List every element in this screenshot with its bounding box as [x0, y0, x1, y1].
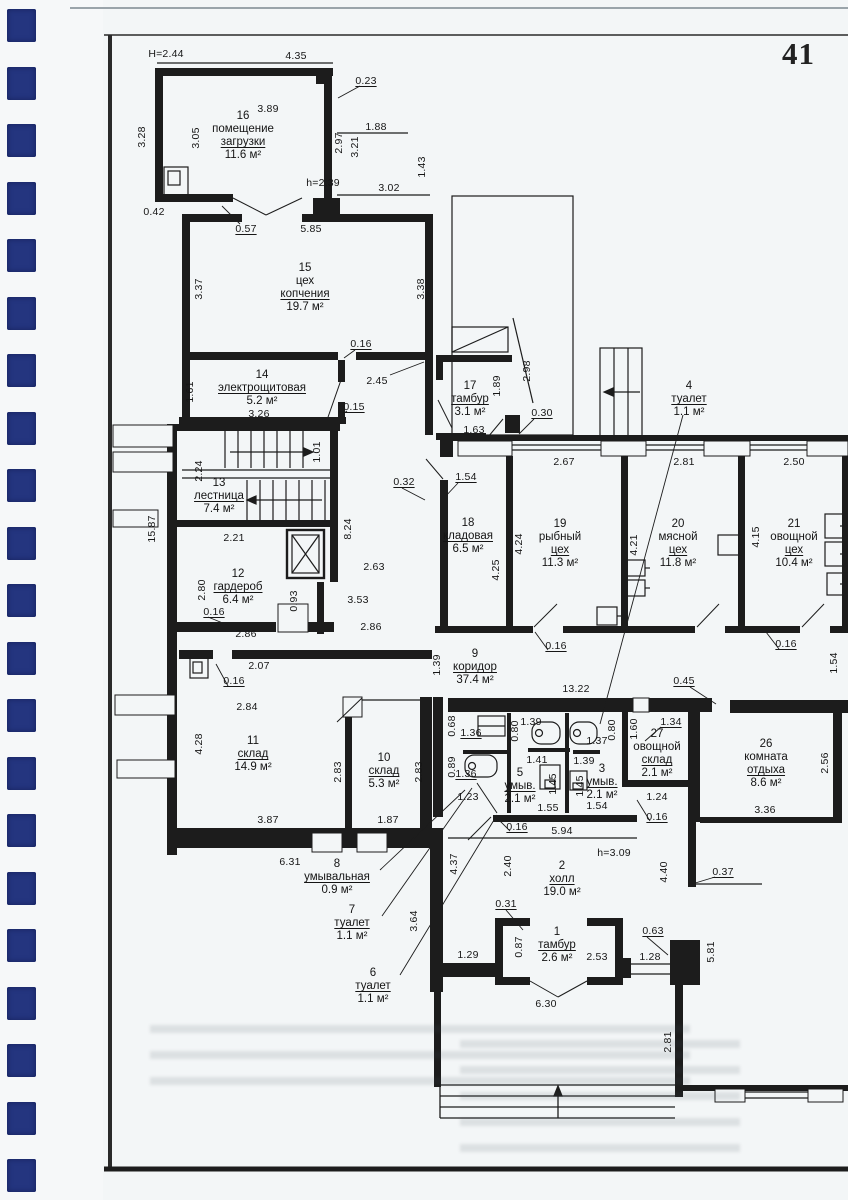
binding-hole — [7, 239, 36, 272]
dimension-label: 3.26 — [248, 408, 269, 420]
dimension-label: 1.54 — [455, 471, 476, 483]
room-label-27: 27овощнойсклад2.1 м² — [633, 728, 680, 780]
room-area: 6.5 м² — [443, 543, 493, 556]
dimension-label: 1.61 — [184, 381, 196, 402]
binding-hole — [7, 814, 36, 847]
dimension-label: 4.37 — [448, 853, 460, 874]
dimension-label: 3.53 — [347, 594, 368, 606]
room-number: 21 — [770, 518, 817, 531]
dimension-label: 0.23 — [355, 75, 376, 87]
dimension-label: 0.16 — [223, 675, 244, 687]
room-name: отдыха — [744, 764, 788, 777]
room-name: склад — [633, 754, 680, 767]
room-area: 3.1 м² — [451, 406, 489, 419]
dimension-label: 0.57 — [235, 223, 256, 235]
room-label-4: 4туалет1.1 м² — [671, 380, 706, 419]
room-name: гардероб — [214, 581, 263, 594]
dimension-label: 0.16 — [646, 811, 667, 823]
dimension-label: h=3.09 — [597, 847, 631, 859]
room-name: лестница — [194, 490, 244, 503]
dimension-label: 2.81 — [662, 1031, 674, 1052]
dimension-label: 2.07 — [248, 660, 269, 672]
binding-hole — [7, 124, 36, 157]
dimension-label: 0.31 — [495, 898, 516, 910]
room-area: 14.9 м² — [234, 761, 271, 774]
binding-hole — [7, 182, 36, 215]
dimension-label: 1.36 — [455, 768, 476, 780]
binding-hole — [7, 354, 36, 387]
dimension-label: 0.93 — [288, 590, 300, 611]
room-number: 4 — [671, 380, 706, 393]
binding-strip — [0, 0, 48, 1200]
dimension-label: 0.16 — [545, 640, 566, 652]
binding-hole — [7, 469, 36, 502]
dimension-label: 1.88 — [365, 121, 386, 133]
room-label-12: 12гардероб6.4 м² — [214, 568, 263, 607]
room-label-15: 15цехкопчения19.7 м² — [280, 262, 329, 314]
dimension-label: 1.23 — [457, 791, 478, 803]
room-label-26: 26комнатаотдыха8.6 м² — [744, 738, 788, 790]
dimension-label: 2.50 — [783, 456, 804, 468]
room-number: 7 — [334, 904, 369, 917]
room-name: туалет — [355, 980, 390, 993]
room-label-3: 3умыв.2.1 м² — [586, 763, 617, 802]
room-name: электрощитовая — [218, 382, 306, 395]
dimension-label: 0.45 — [673, 675, 694, 687]
room-area: 1.1 м² — [355, 993, 390, 1006]
dimension-label: 1.54 — [586, 800, 607, 812]
dimension-label: 1.39 — [520, 716, 541, 728]
dimension-label: 0.87 — [513, 936, 525, 957]
dimension-label: 0.16 — [203, 606, 224, 618]
binding-hole — [7, 9, 36, 42]
dimension-label: 1.39 — [573, 755, 594, 767]
room-name: тамбур — [451, 393, 489, 406]
dimension-label: 0.68 — [446, 715, 458, 736]
dimension-label: 0.80 — [509, 720, 521, 741]
room-area: 19.7 м² — [280, 301, 329, 314]
room-area: 5.2 м² — [218, 395, 306, 408]
room-area: 1.1 м² — [334, 930, 369, 943]
room-number: 15 — [280, 262, 329, 275]
room-number: 20 — [658, 518, 697, 531]
room-area: 2.1 м² — [504, 793, 535, 806]
room-name: цех — [770, 544, 817, 557]
room-number: 1 — [538, 926, 576, 939]
room-area: 2.6 м² — [538, 952, 576, 965]
dimension-label: 0.32 — [393, 476, 414, 488]
room-name: туалет — [671, 393, 706, 406]
room-name: копчения — [280, 288, 329, 301]
room-label-17: 17тамбур3.1 м² — [451, 380, 489, 419]
dimension-label: 1.41 — [526, 754, 547, 766]
binding-hole — [7, 1159, 36, 1192]
room-area: 2.1 м² — [633, 767, 680, 780]
dimension-label: 2.21 — [223, 532, 244, 544]
binding-hole — [7, 642, 36, 675]
room-label-2: 2холл19.0 м² — [543, 860, 580, 899]
dimension-label: 1.01 — [311, 441, 323, 462]
room-number: 11 — [234, 735, 271, 748]
room-name: кладовая — [443, 530, 493, 543]
room-label-10: 10склад5.3 м² — [369, 752, 400, 791]
room-label-18: 18кладовая6.5 м² — [443, 517, 493, 556]
binding-hole — [7, 67, 36, 100]
room-name: овощной — [770, 531, 817, 544]
room-label-7: 7туалет1.1 м² — [334, 904, 369, 943]
dimension-label: 3.02 — [378, 182, 399, 194]
dimension-label: 2.98 — [521, 360, 533, 381]
room-number: 27 — [633, 728, 680, 741]
dimension-label: 1.29 — [457, 949, 478, 961]
dimension-label: 1.63 — [463, 424, 484, 436]
dimension-label: 0.16 — [775, 638, 796, 650]
room-name: умыв. — [586, 776, 617, 789]
room-label-1: 1тамбур2.6 м² — [538, 926, 576, 965]
room-area: 11.6 м² — [212, 149, 274, 162]
binding-hole — [7, 1102, 36, 1135]
room-name: склад — [234, 748, 271, 761]
dimension-label: 2.81 — [673, 456, 694, 468]
room-area: 8.6 м² — [744, 777, 788, 790]
binding-hole — [7, 987, 36, 1020]
room-name: мясной — [658, 531, 697, 544]
dimension-label: 2.97 — [333, 132, 345, 153]
room-number: 10 — [369, 752, 400, 765]
dimension-label: 4.28 — [193, 733, 205, 754]
binding-hole — [7, 872, 36, 905]
binding-hole — [7, 929, 36, 962]
dimension-label: 4.15 — [750, 526, 762, 547]
floor-plan-labels: 16помещениезагрузки11.6 м²15цехкопчения1… — [0, 0, 848, 1200]
room-name: помещение — [212, 123, 274, 136]
room-area: 37.4 м² — [453, 674, 497, 687]
dimension-label: 3.36 — [754, 804, 775, 816]
dimension-label: 5.94 — [551, 825, 572, 837]
room-area: 19.0 м² — [543, 886, 580, 899]
dimension-label: 2.84 — [236, 701, 257, 713]
binding-hole — [7, 527, 36, 560]
dimension-label: 2.56 — [819, 752, 831, 773]
dimension-label: 2.86 — [235, 628, 256, 640]
room-label-16: 16помещениезагрузки11.6 м² — [212, 110, 274, 162]
room-area: 0.9 м² — [304, 884, 370, 897]
dimension-label: 1.37 — [586, 735, 607, 747]
room-area: 5.3 м² — [369, 778, 400, 791]
dimension-label: 1.87 — [377, 814, 398, 826]
dimension-label: 2.86 — [360, 621, 381, 633]
dimension-label: 3.37 — [193, 278, 205, 299]
dimension-label: 4.21 — [628, 534, 640, 555]
dimension-label: 6.31 — [279, 856, 300, 868]
scanned-page: 16помещениезагрузки11.6 м²15цехкопчения1… — [0, 0, 848, 1200]
dimension-label: 1.36 — [460, 727, 481, 739]
room-number: 17 — [451, 380, 489, 393]
room-number: 8 — [304, 858, 370, 871]
room-name: тамбур — [538, 939, 576, 952]
binding-hole — [7, 699, 36, 732]
room-name: туалет — [334, 917, 369, 930]
dimension-label: 3.21 — [349, 136, 361, 157]
room-name: овощной — [633, 741, 680, 754]
dimension-label: 2.83 — [413, 761, 425, 782]
dimension-label: 2.63 — [363, 561, 384, 573]
room-name: умывальная — [304, 871, 370, 884]
dimension-label: 3.87 — [257, 814, 278, 826]
dimension-label: 6.30 — [535, 998, 556, 1010]
room-number: 5 — [504, 767, 535, 780]
room-name: цех — [658, 544, 697, 557]
room-label-14: 14электрощитовая5.2 м² — [218, 369, 306, 408]
room-number: 6 — [355, 967, 390, 980]
room-name: комната — [744, 751, 788, 764]
room-area: 1.1 м² — [671, 406, 706, 419]
dimension-label: 4.24 — [513, 533, 525, 554]
room-number: 14 — [218, 369, 306, 382]
room-number: 19 — [539, 518, 581, 531]
room-name: рыбный — [539, 531, 581, 544]
room-label-19: 19рыбныйцех11.3 м² — [539, 518, 581, 570]
dimension-label: 0.42 — [143, 206, 164, 218]
dimension-label: 3.28 — [136, 126, 148, 147]
dimension-label: h=2.39 — [306, 177, 340, 189]
room-name: умыв. — [504, 780, 535, 793]
room-label-13: 13лестница7.4 м² — [194, 477, 244, 516]
room-label-6: 6туалет1.1 м² — [355, 967, 390, 1006]
dimension-label: 15.87 — [146, 515, 158, 542]
binding-hole — [7, 412, 36, 445]
dimension-label: 0.15 — [343, 401, 364, 413]
dimension-label: 1.24 — [646, 791, 667, 803]
dimension-label: 3.38 — [415, 278, 427, 299]
room-number: 18 — [443, 517, 493, 530]
dimension-label: 1.45 — [574, 775, 586, 796]
room-label-20: 20мяснойцех11.8 м² — [658, 518, 697, 570]
room-label-9: 9коридор37.4 м² — [453, 648, 497, 687]
dimension-label: 8.24 — [342, 518, 354, 539]
room-area: 11.8 м² — [658, 557, 697, 570]
dimension-label: 2.67 — [553, 456, 574, 468]
page-number: 41 — [782, 36, 815, 72]
room-name: коридор — [453, 661, 497, 674]
dimension-label: 2.53 — [586, 951, 607, 963]
dimension-label: 1.39 — [431, 654, 443, 675]
room-name: цех — [280, 275, 329, 288]
binding-hole — [7, 1044, 36, 1077]
dimension-label: 1.43 — [416, 156, 428, 177]
dimension-label: 0.16 — [350, 338, 371, 350]
room-number: 9 — [453, 648, 497, 661]
binding-hole — [7, 584, 36, 617]
room-label-5: 5умыв.2.1 м² — [504, 767, 535, 806]
dimension-label: 4.25 — [490, 559, 502, 580]
dimension-label: H=2.44 — [148, 48, 183, 60]
room-label-8: 8умывальная0.9 м² — [304, 858, 370, 897]
binding-hole — [7, 297, 36, 330]
dimension-label: 1.89 — [491, 375, 503, 396]
room-number: 12 — [214, 568, 263, 581]
room-label-11: 11склад14.9 м² — [234, 735, 271, 774]
room-area: 10.4 м² — [770, 557, 817, 570]
dimension-label: 0.80 — [606, 719, 618, 740]
dimension-label: 0.37 — [712, 866, 733, 878]
dimension-label: 0.30 — [531, 407, 552, 419]
dimension-label: 2.45 — [366, 375, 387, 387]
dimension-label: 2.40 — [502, 855, 514, 876]
dimension-label: 3.05 — [190, 127, 202, 148]
dimension-label: 5.85 — [300, 223, 321, 235]
room-area: 7.4 м² — [194, 503, 244, 516]
dimension-label: 2.24 — [193, 460, 205, 481]
dimension-label: 2.83 — [332, 761, 344, 782]
room-name: склад — [369, 765, 400, 778]
dimension-label: 4.35 — [285, 50, 306, 62]
dimension-label: 5.81 — [705, 941, 717, 962]
dimension-label: 1.54 — [828, 652, 840, 673]
room-name: холл — [543, 873, 580, 886]
dimension-label: 0.16 — [506, 821, 527, 833]
dimension-label: 1.28 — [639, 951, 660, 963]
dimension-label: 13.22 — [562, 683, 589, 695]
binding-hole — [7, 757, 36, 790]
room-number: 2 — [543, 860, 580, 873]
dimension-label: 1.55 — [537, 802, 558, 814]
dimension-label: 2.80 — [196, 579, 208, 600]
room-name: цех — [539, 544, 581, 557]
dimension-label: 1.34 — [660, 716, 681, 728]
dimension-label: 1.60 — [628, 718, 640, 739]
dimension-label: 3.89 — [257, 103, 278, 115]
dimension-label: 3.64 — [408, 910, 420, 931]
dimension-label: 1.45 — [547, 773, 559, 794]
dimension-label: 4.40 — [658, 861, 670, 882]
room-area: 11.3 м² — [539, 557, 581, 570]
dimension-label: 0.63 — [642, 925, 663, 937]
room-number: 26 — [744, 738, 788, 751]
room-label-21: 21овощнойцех10.4 м² — [770, 518, 817, 570]
room-name: загрузки — [212, 136, 274, 149]
